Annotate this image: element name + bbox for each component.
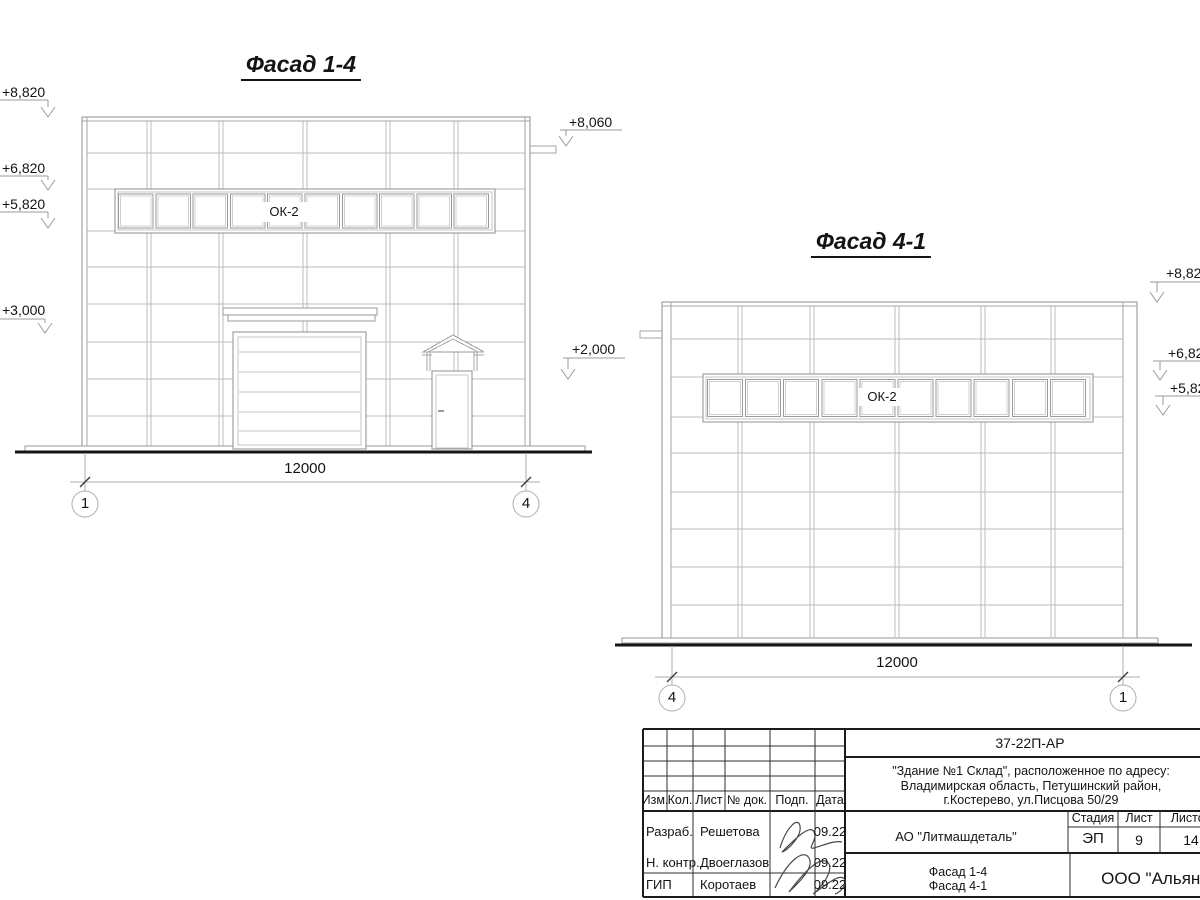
col-header-data: Дата	[816, 794, 844, 808]
col-header-podp: Подп.	[775, 794, 808, 808]
row-role: Н. контр.	[646, 856, 700, 870]
gate-canopy-upper	[223, 308, 377, 315]
window-band-label: ОК-2	[867, 390, 896, 404]
elevation-text-parapet-drain: +8,060	[569, 115, 612, 130]
dimension-text: 12000	[876, 655, 918, 672]
facade-1-4-drawing	[0, 100, 625, 517]
row-name: Двоеглазов	[700, 856, 769, 870]
row-date: 09.22	[814, 878, 847, 892]
address-line2: Владимирская область, Петушинский район,	[901, 780, 1162, 794]
col-header-izm: Изм.	[642, 794, 669, 808]
elevation-text-gate-canopy: +3,000	[2, 303, 45, 318]
address-line1: "Здание №1 Склад", расположенное по адре…	[892, 765, 1170, 779]
sheet-value: 9	[1135, 833, 1143, 848]
elevation-text-window-top: +6,820	[2, 161, 45, 176]
axis-label-4: 4	[668, 690, 676, 707]
elevation-text-window-bottom: +5,820	[2, 197, 45, 212]
elevation-text-top: +8,820	[2, 85, 45, 100]
gutter-spout	[640, 331, 662, 338]
sheet-title-line1: Фасад 1-4	[929, 866, 988, 880]
elevation-text-window-bottom: +5,820	[1170, 381, 1200, 396]
panel-joints-vertical	[738, 306, 1055, 637]
axis-label-1: 1	[1119, 690, 1127, 707]
company-name: АО "Литмашдеталь"	[895, 830, 1016, 844]
row-date: 09.22	[814, 825, 847, 839]
address-line3: г.Костерево, ул.Писцова 50/29	[944, 794, 1119, 808]
facade-1-4-title: Фасад 1-4	[241, 52, 361, 81]
axis-label-1: 1	[81, 496, 89, 513]
axis-label-4: 4	[522, 496, 530, 513]
stage-value: ЭП	[1082, 831, 1104, 848]
elevation-text-top: +8,820	[1166, 266, 1200, 281]
col-header-kol: Кол.	[668, 794, 693, 808]
row-name: Решетова	[700, 825, 760, 839]
gate-canopy-lower	[228, 315, 375, 321]
doc-number: 37-22П-АР	[995, 736, 1064, 751]
row-date: 09.22	[814, 856, 847, 870]
org-name: ООО "Альянс"	[1101, 870, 1200, 889]
facade-4-1-title: Фасад 4-1	[811, 229, 931, 258]
col-header-doc: № док.	[727, 794, 767, 808]
stage-label: Стадия	[1072, 812, 1115, 826]
gutter-spout	[530, 146, 556, 153]
dimension-text: 12000	[284, 461, 326, 478]
sheets-value: 14	[1183, 833, 1199, 848]
elevation-text-window-top: +6,820	[1168, 346, 1200, 361]
sheet-label: Лист	[1125, 812, 1152, 826]
drawing-sheet: Фасад 1-4 +8,820 +6,820 +5,820 +3,000 +8…	[0, 0, 1200, 900]
row-role: ГИП	[646, 878, 672, 892]
row-role: Разраб.	[646, 825, 693, 839]
facade-4-1-drawing	[615, 282, 1200, 711]
plinth	[622, 638, 1158, 643]
sheets-label: Листов	[1171, 812, 1200, 826]
sheet-title-line2: Фасад 4-1	[929, 880, 988, 894]
door-outline	[432, 371, 472, 449]
window-band-label: ОК-2	[269, 205, 298, 219]
elevation-text-door-canopy: +2,000	[572, 342, 615, 357]
row-name: Коротаев	[700, 878, 756, 892]
col-header-list: Лист	[695, 794, 722, 808]
